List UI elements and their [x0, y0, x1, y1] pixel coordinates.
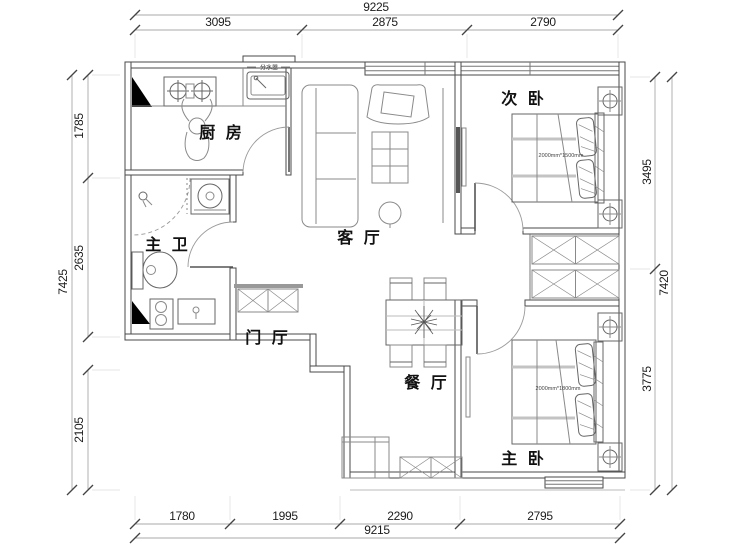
- dim-right-seg-1: 3495: [640, 159, 654, 185]
- dim-right-overall: 7420: [657, 270, 671, 296]
- radiator: [466, 357, 470, 417]
- dim-bottom-seg-3: 2290: [387, 509, 413, 523]
- dim-left-overall: 7425: [56, 269, 70, 295]
- wall-lower-left: [344, 366, 350, 478]
- wall-right: [619, 62, 625, 478]
- bed-icon: [512, 340, 596, 444]
- dim-chain-top: 9225 3095 2875 2790: [130, 0, 623, 35]
- wall-top-left: [125, 62, 365, 68]
- vanity-cabinet-icon: [178, 299, 215, 324]
- wall-bedroom2-south: [523, 228, 619, 234]
- shower-icon: [139, 192, 147, 200]
- room-label-master-bedroom: 主 卧: [501, 449, 546, 468]
- wardrobes: [532, 236, 619, 298]
- kitchen-door-arc: [243, 127, 289, 172]
- toilet-icon: [132, 252, 143, 289]
- kitchen: 分水器 厨 房: [131, 64, 290, 161]
- dim-bottom-seg-4: 2795: [527, 509, 553, 523]
- chair-icon: [424, 345, 446, 367]
- dim-left-seg-1: 1785: [72, 113, 86, 139]
- room-label-master-bath: 主 卫: [145, 235, 190, 254]
- chair-icon: [390, 345, 412, 367]
- room-label-second-bedroom: 次 卧: [501, 89, 546, 108]
- master-bath: 主 卫: [132, 178, 229, 329]
- wall-column-top: [455, 62, 461, 75]
- dim-left-seg-2: 2635: [72, 245, 86, 271]
- dim-top-overall: 9225: [363, 0, 389, 14]
- room-label-kitchen: 厨 房: [199, 123, 244, 142]
- pillow: [575, 343, 596, 387]
- dim-chain-bottom: 1780 1995 2290 2795 9215: [130, 509, 625, 543]
- living-room: 客 厅: [302, 85, 460, 247]
- water-manifold-label: 分水器: [260, 64, 278, 72]
- chair-icon: [390, 278, 412, 300]
- dim-top-seg-3: 2790: [530, 15, 556, 29]
- plant-icon: [411, 306, 437, 338]
- chair-icon: [424, 278, 446, 300]
- armchair-icon: [367, 85, 429, 124]
- master-door-arc: [477, 306, 525, 354]
- bed-size-label: 2000mm*1500mm: [539, 153, 584, 159]
- wall-fill-triangle-kitchen: [132, 77, 152, 107]
- wall-bath-east-lower: [230, 268, 236, 340]
- bedroom2-door-arc: [475, 183, 523, 231]
- tv-icon: [456, 127, 460, 193]
- window-master-south: [545, 477, 603, 488]
- wall-bath-east-upper: [230, 175, 236, 222]
- pillow: [575, 393, 596, 437]
- bed-size-label: 2000mm*1800mm: [536, 386, 581, 392]
- dim-chain-left: 7425 1785 2635 2105: [56, 70, 93, 495]
- bath-door-arc: [188, 222, 233, 267]
- dim-bottom-overall: 9215: [364, 523, 390, 537]
- blanket-fold: [556, 340, 570, 444]
- wall-kitchen-south: [125, 170, 243, 175]
- window-band-top: [365, 62, 619, 75]
- second-bedroom: 次 卧 2000mm*1500mm: [462, 87, 622, 228]
- wall-bedroom2-south-stub: [461, 228, 475, 234]
- sofa-icon: [302, 85, 358, 227]
- floor-plan-canvas: 9225 3095 2875 2790 1780 1995 2290 2795 …: [0, 0, 740, 555]
- room-label-foyer: 门 厅: [245, 328, 290, 347]
- shower-curtain: [133, 178, 190, 235]
- dining-room: 餐 厅: [342, 278, 462, 478]
- floor-plan-page: 9225 3095 2875 2790 1780 1995 2290 2795 …: [0, 0, 740, 555]
- side-table-icon: [379, 202, 401, 224]
- dim-left-seg-3: 2105: [72, 417, 86, 443]
- dim-right-seg-2: 3775: [640, 366, 654, 392]
- wall-master-north: [525, 300, 619, 306]
- room-label-dining: 餐 厅: [403, 373, 449, 392]
- wall-fill-triangle-bath: [132, 301, 150, 324]
- dim-top-seg-2: 2875: [372, 15, 398, 29]
- wall-master-north-stub: [461, 300, 477, 306]
- dim-bottom-seg-1: 1780: [169, 509, 195, 523]
- wall-master-west: [455, 300, 461, 478]
- pillow: [576, 159, 597, 199]
- dim-chain-right: 3495 3775 7420: [640, 72, 677, 495]
- master-bedroom: 2000mm*1800mm 主 卧: [466, 313, 622, 471]
- wall-left: [125, 62, 131, 340]
- vanity-sinks-icon: [150, 299, 173, 329]
- dim-bottom-seg-2: 1995: [272, 509, 298, 523]
- room-label-living: 客 厅: [337, 228, 382, 247]
- radiator: [462, 128, 466, 186]
- dim-top-seg-1: 3095: [205, 15, 231, 29]
- kitchen-parapet: [243, 56, 295, 62]
- pillow: [576, 117, 597, 157]
